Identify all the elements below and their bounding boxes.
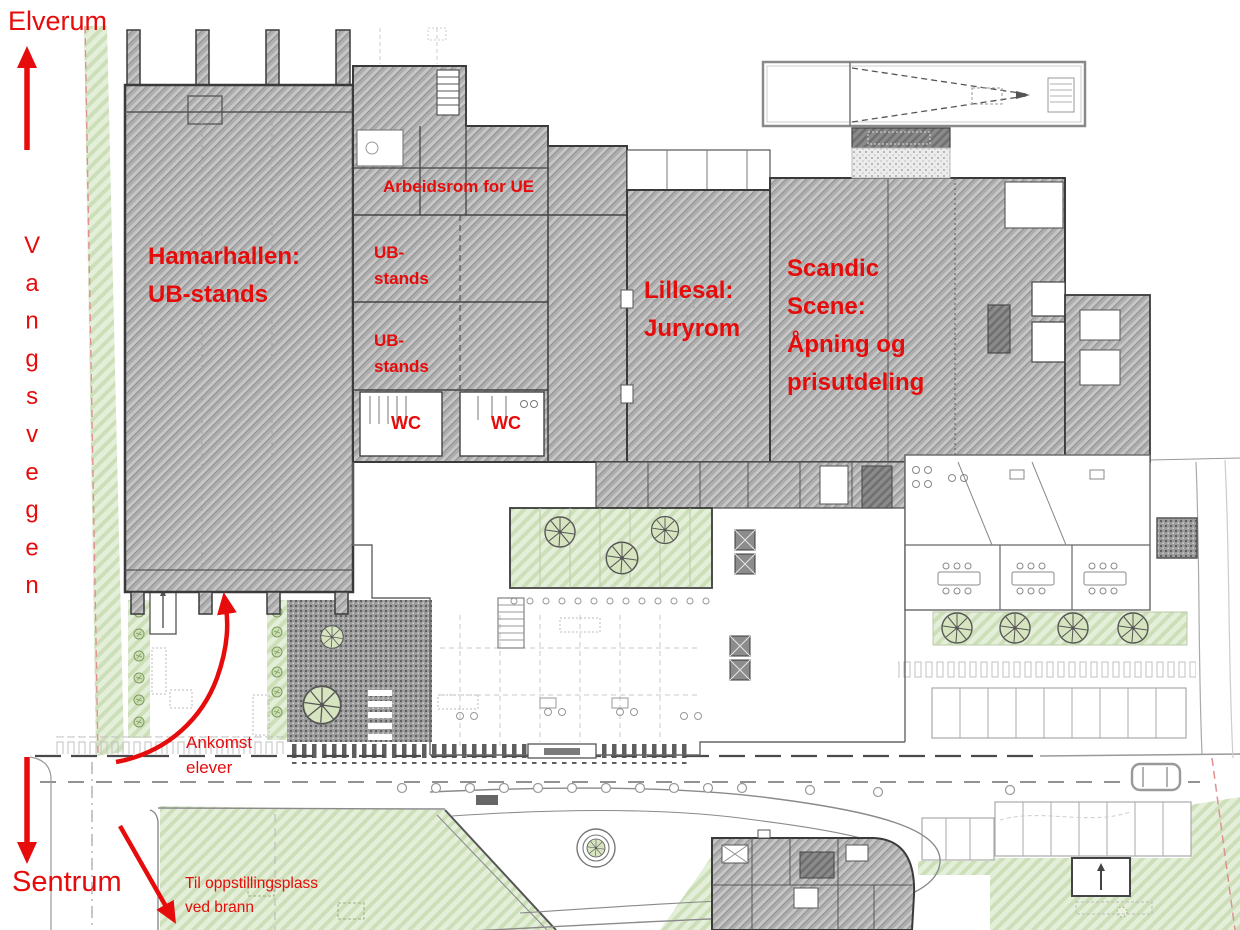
label-lillesal: Lillesal: Juryrom (644, 272, 740, 348)
car-icon (1132, 764, 1180, 790)
roadside-green-strip (84, 26, 124, 756)
label-ub-stands-lower: UB- stands (374, 328, 429, 380)
label-ankomst-elever: Ankomst elever (186, 730, 252, 780)
site-plan: Elverum Vangsvegen Sentrum Hamarhallen: … (0, 0, 1240, 930)
service-rooms-band (596, 462, 905, 508)
courtyard-garden (510, 508, 712, 604)
roof-structure (763, 62, 1085, 178)
label-elverum: Elverum (8, 6, 107, 37)
label-oppstillingsplass: Til oppstillingsplass ved brann (185, 872, 318, 920)
label-scandic-scene: Scandic Scene: Åpning og prisutdeling (787, 250, 924, 402)
hamarhallen-building (125, 30, 353, 614)
parking-grid-southeast (995, 802, 1191, 856)
label-wc-left: WC (391, 413, 421, 434)
label-vangsvegen: Vangsvegen (18, 232, 46, 602)
label-arbeidsrom: Arbeidsrom for UE (383, 174, 534, 200)
floor-plan-drawing (0, 0, 1240, 930)
label-sentrum: Sentrum (12, 866, 122, 899)
label-hamarhallen: Hamarhallen: UB-stands (148, 238, 300, 314)
entrance-plaza (287, 600, 432, 742)
label-wc-right: WC (491, 413, 521, 434)
south-building (712, 830, 914, 930)
buildings-layer (125, 28, 1197, 930)
east-wing-rooms (905, 455, 1197, 610)
parking-grid-east (932, 688, 1186, 738)
label-ub-stands-upper: UB- stands (374, 240, 429, 292)
